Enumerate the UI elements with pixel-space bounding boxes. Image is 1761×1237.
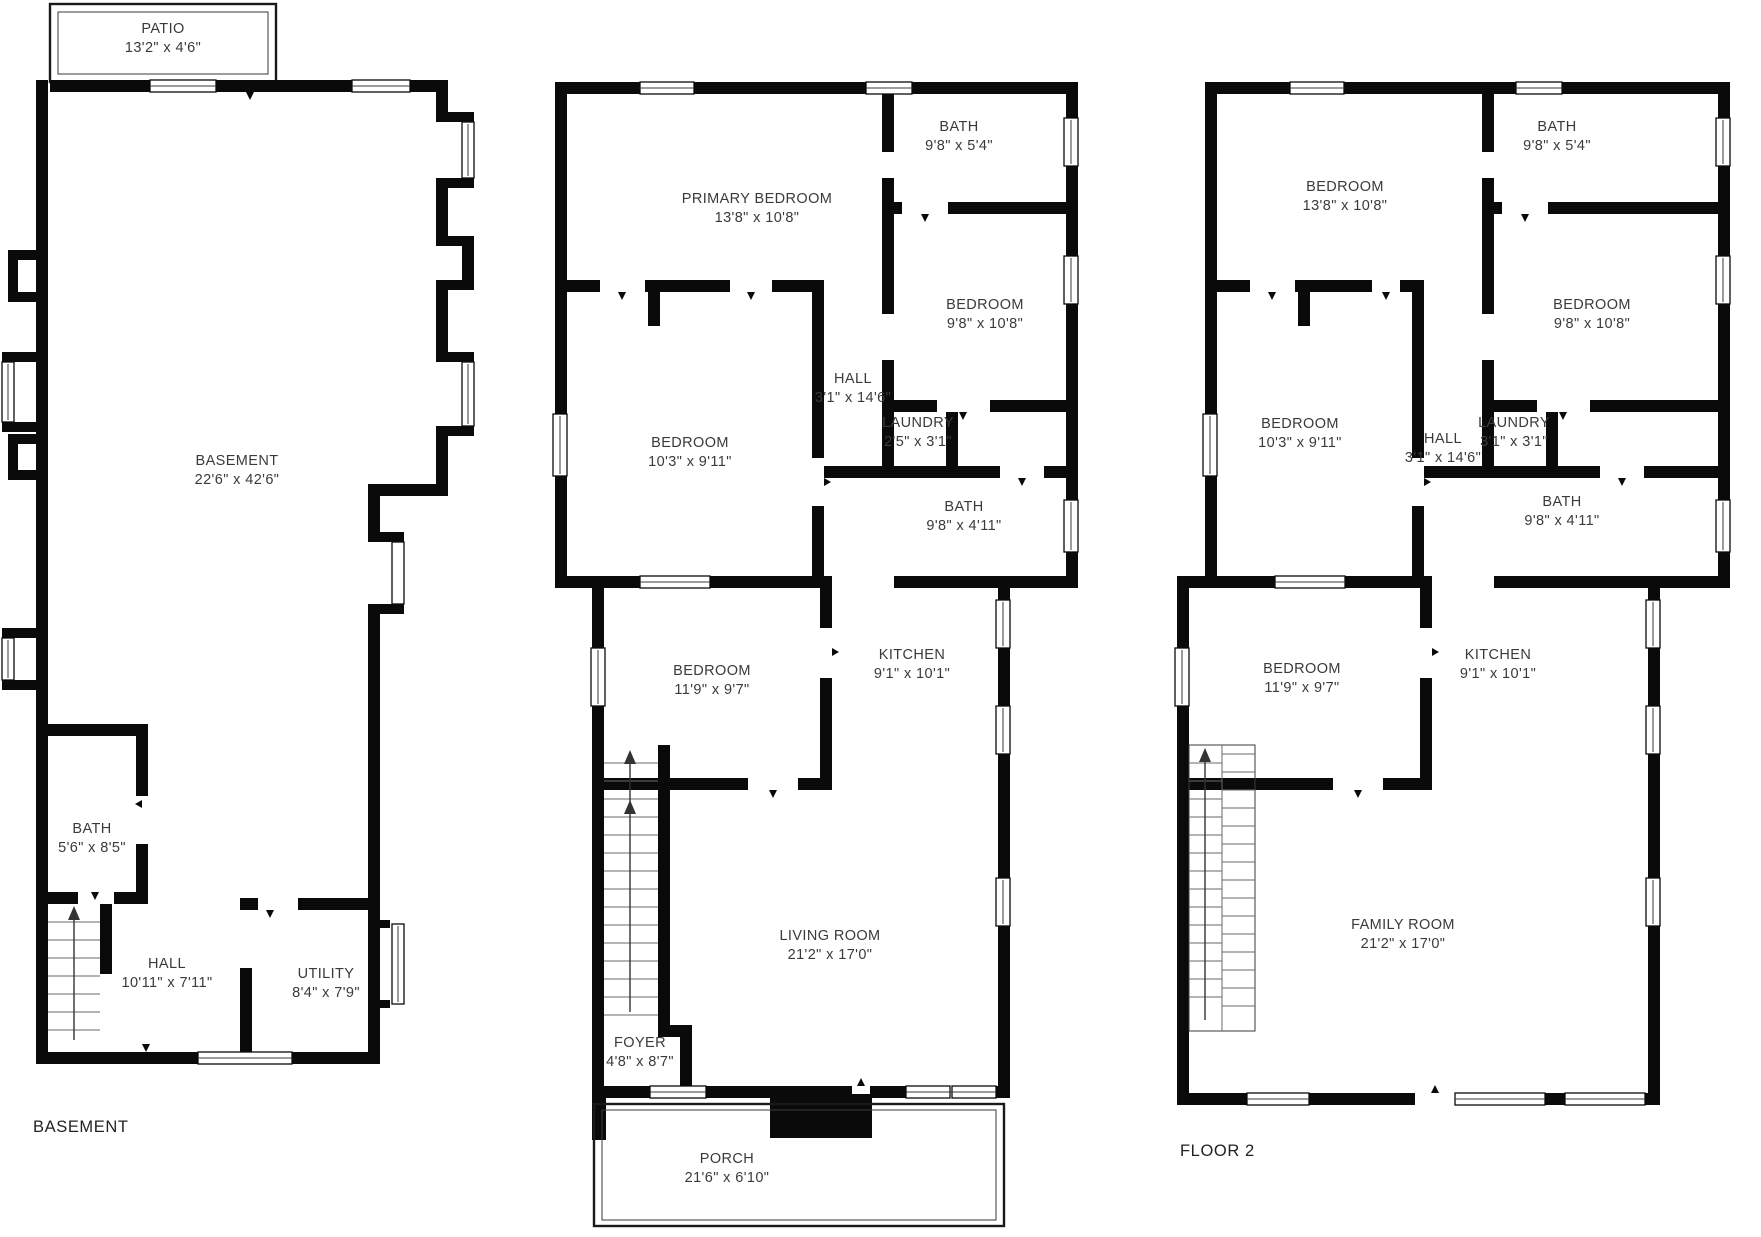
room-dims: 10'11" x 7'11" [121,974,212,993]
room-name: UTILITY [292,965,360,984]
floorplan-drawing [0,0,1761,1237]
room-label-f2-laundry: LAUNDRY 3'1" x 3'1" [1478,414,1550,452]
room-name: BATH [1523,118,1591,137]
floor2-floor-caption: FLOOR 2 [1180,1142,1255,1161]
room-label-basement-bath: BATH 5'6" x 8'5" [58,820,126,858]
room-label-f2-bedroom-mid: BEDROOM 10'3" x 9'11" [1258,415,1342,453]
room-name: BEDROOM [1263,660,1341,679]
room-dims: 10'3" x 9'11" [1258,434,1342,453]
room-name: KITCHEN [1460,646,1536,665]
room-label-f1-kitchen: KITCHEN 9'1" x 10'1" [874,646,950,684]
room-label-patio: PATIO 13'2" x 4'6" [125,20,201,58]
room-label-foyer: FOYER 4'8" x 8'7" [606,1034,674,1072]
room-name: BATH [58,820,126,839]
room-dims: 11'9" x 9'7" [673,681,751,700]
room-dims: 9'8" x 5'4" [925,137,993,156]
room-dims: 8'4" x 7'9" [292,984,360,1003]
room-name: LIVING ROOM [779,927,880,946]
room-label-f1-bath-lower: BATH 9'8" x 4'11" [926,498,1001,536]
room-name: HALL [1405,430,1481,449]
room-name: LAUNDRY [1478,414,1550,433]
room-name: BEDROOM [648,434,732,453]
room-name: BEDROOM [946,296,1024,315]
room-label-f1-bedroom-upper: BEDROOM 9'8" x 10'8" [946,296,1024,334]
room-dims: 3'1" x 14'6" [1405,449,1481,468]
room-dims: 22'6" x 42'6" [195,471,280,490]
room-label-f1-bath-upper: BATH 9'8" x 5'4" [925,118,993,156]
room-label-f1-bedroom-lower: BEDROOM 11'9" x 9'7" [673,662,751,700]
room-dims: 21'2" x 17'0" [1351,935,1455,954]
room-dims: 3'1" x 14'6" [815,389,891,408]
room-name: HALL [121,955,212,974]
room-name: BEDROOM [673,662,751,681]
room-name: FOYER [606,1034,674,1053]
room-label-f1-laundry: LAUNDRY 2'5" x 3'1" [882,414,954,452]
room-name: KITCHEN [874,646,950,665]
room-label-f2-bath-lower: BATH 9'8" x 4'11" [1524,493,1599,531]
room-dims: 9'8" x 4'11" [926,517,1001,536]
room-label-basement-hall: HALL 10'11" x 7'11" [121,955,212,993]
room-name: BASEMENT [195,452,280,471]
room-name: BEDROOM [1258,415,1342,434]
room-name: HALL [815,370,891,389]
room-dims: 9'8" x 10'8" [946,315,1024,334]
room-dims: 10'3" x 9'11" [648,453,732,472]
room-label-basement: BASEMENT 22'6" x 42'6" [195,452,280,490]
room-dims: 13'8" x 10'8" [1303,197,1388,216]
room-dims: 3'1" x 3'1" [1478,433,1550,452]
room-dims: 11'9" x 9'7" [1263,679,1341,698]
room-dims: 5'6" x 8'5" [58,839,126,858]
room-label-f2-hall: HALL 3'1" x 14'6" [1405,430,1481,468]
room-label-f2-bedroom-upper-left: BEDROOM 13'8" x 10'8" [1303,178,1388,216]
room-name: LAUNDRY [882,414,954,433]
room-label-f2-bath-upper: BATH 9'8" x 5'4" [1523,118,1591,156]
room-label-utility: UTILITY 8'4" x 7'9" [292,965,360,1003]
room-label-living-room: LIVING ROOM 21'2" x 17'0" [779,927,880,965]
room-name: PATIO [125,20,201,39]
room-dims: 21'6" x 6'10" [685,1169,770,1188]
room-label-f2-kitchen: KITCHEN 9'1" x 10'1" [1460,646,1536,684]
room-label-f1-bedroom-mid: BEDROOM 10'3" x 9'11" [648,434,732,472]
room-dims: 9'1" x 10'1" [1460,665,1536,684]
room-label-f2-bedroom-lower: BEDROOM 11'9" x 9'7" [1263,660,1341,698]
room-name: FAMILY ROOM [1351,916,1455,935]
room-label-f2-bedroom-upper-right: BEDROOM 9'8" x 10'8" [1553,296,1631,334]
basement-plan-walls [2,4,474,1064]
room-label-family-room: FAMILY ROOM 21'2" x 17'0" [1351,916,1455,954]
room-dims: 4'8" x 8'7" [606,1053,674,1072]
room-name: BATH [926,498,1001,517]
room-dims: 21'2" x 17'0" [779,946,880,965]
room-dims: 9'1" x 10'1" [874,665,950,684]
room-dims: 9'8" x 4'11" [1524,512,1599,531]
room-dims: 13'8" x 10'8" [682,209,833,228]
room-label-porch: PORCH 21'6" x 6'10" [685,1150,770,1188]
room-name: BATH [1524,493,1599,512]
room-dims: 9'8" x 10'8" [1553,315,1631,334]
room-dims: 13'2" x 4'6" [125,39,201,58]
room-name: BEDROOM [1553,296,1631,315]
room-dims: 9'8" x 5'4" [1523,137,1591,156]
room-dims: 2'5" x 3'1" [882,433,954,452]
room-label-primary-bedroom: PRIMARY BEDROOM 13'8" x 10'8" [682,190,833,228]
basement-floor-caption: BASEMENT [33,1118,129,1137]
room-name: PORCH [685,1150,770,1169]
room-name: BEDROOM [1303,178,1388,197]
room-label-f1-hall: HALL 3'1" x 14'6" [815,370,891,408]
room-name: PRIMARY BEDROOM [682,190,833,209]
floorplan-page: PATIO 13'2" x 4'6" BASEMENT 22'6" x 42'6… [0,0,1761,1237]
room-name: BATH [925,118,993,137]
